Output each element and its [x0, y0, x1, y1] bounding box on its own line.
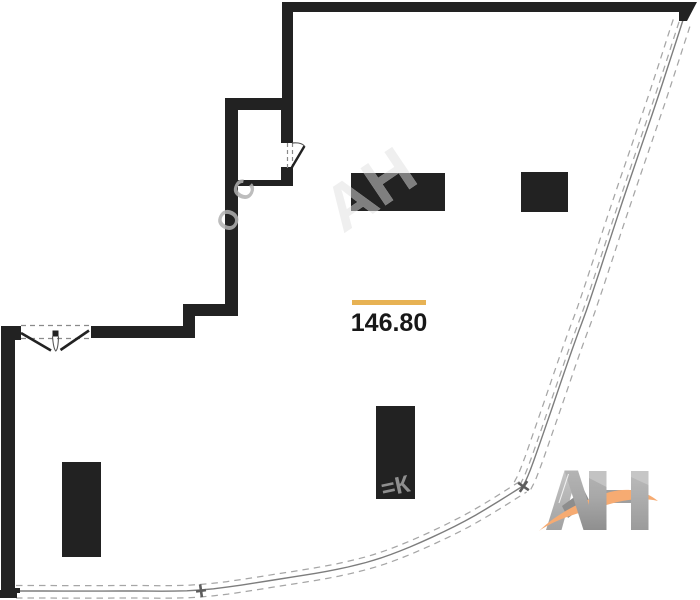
svg-text:146.80: 146.80 — [351, 309, 427, 337]
